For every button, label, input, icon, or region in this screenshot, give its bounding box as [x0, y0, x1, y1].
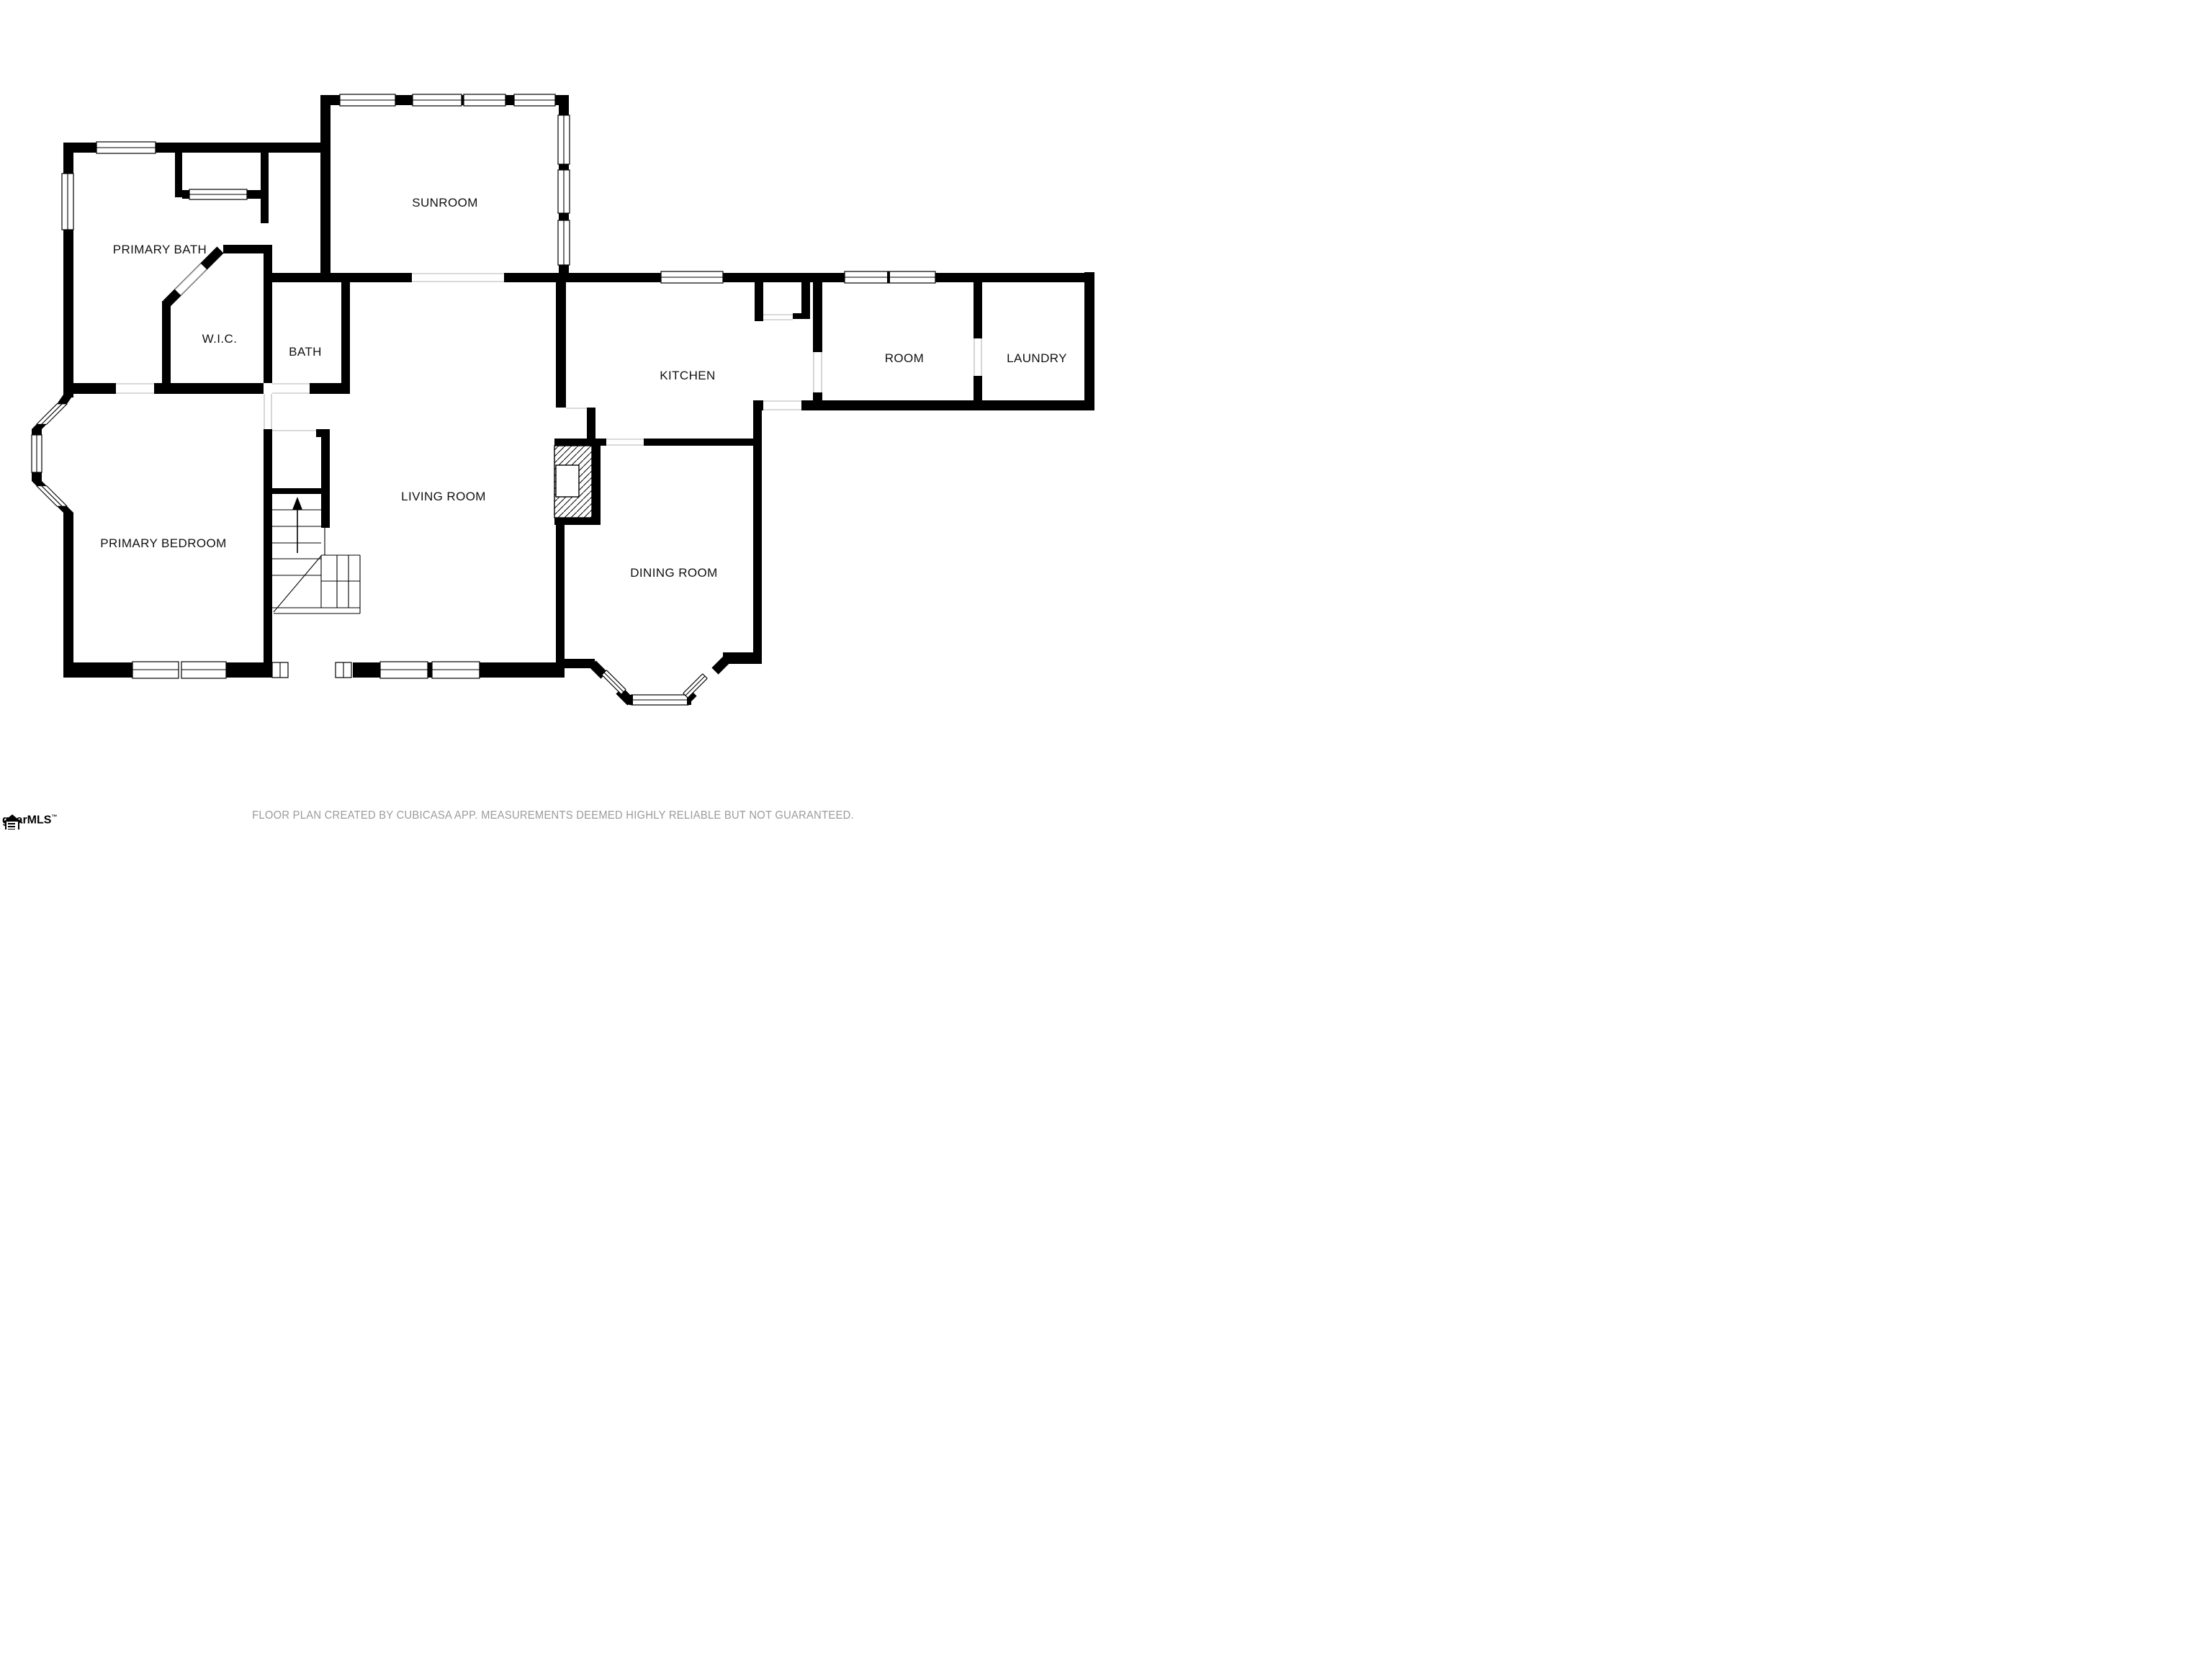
window-sunroom-right-2 [558, 170, 570, 213]
window-bay-bedroom-lower [37, 486, 68, 507]
door-living-bottom-jambs [272, 662, 351, 678]
mls-logo: ggarMLS™ [2, 814, 57, 827]
window-primary-bath-left [62, 174, 73, 230]
room-label-laundry: LAUNDRY [1007, 351, 1067, 365]
fireplace-group [554, 446, 592, 518]
window-sunroom-top-1 [340, 94, 395, 106]
room-label-wic: W.I.C. [202, 332, 238, 346]
door-openings-group [116, 264, 981, 445]
window-living-bottom-1 [380, 662, 428, 678]
room-label-kitchen: KITCHEN [660, 369, 715, 382]
window-sunroom-right-1 [558, 115, 570, 164]
room-label-room: ROOM [885, 351, 924, 365]
window-sunroom-top-4 [514, 94, 555, 106]
room-label-living-room: LIVING ROOM [401, 490, 486, 503]
window-sunroom-top-3 [464, 94, 505, 106]
window-living-bottom-2 [432, 662, 480, 678]
window-bedroom-bottom [132, 662, 226, 678]
window-bay-bedroom-upper [37, 404, 68, 425]
stairs-up-arrow-icon [292, 497, 302, 553]
window-sunroom-right-3 [558, 220, 570, 265]
window-primary-bath-top [96, 142, 156, 153]
window-bay-dining-bottom [629, 695, 691, 705]
room-label-bath: BATH [289, 345, 322, 359]
room-label-dining-room: DINING ROOM [630, 566, 718, 580]
disclaimer-text: FLOOR PLAN CREATED BY CUBICASA APP. MEAS… [27, 809, 1078, 822]
room-label-primary-bath: PRIMARY BATH [113, 243, 207, 256]
trademark-symbol: ™ [51, 814, 57, 820]
window-closet-niche [189, 189, 247, 199]
floorplan-drawing: SUNROOM PRIMARY BATH W.I.C. BATH KITCHEN… [0, 0, 1106, 829]
room-label-primary-bedroom: PRIMARY BEDROOM [100, 536, 226, 550]
window-bay-bedroom-middle [32, 435, 42, 472]
window-kitchen-top [661, 271, 723, 283]
windows-group [32, 94, 935, 705]
house-logo-icon [2, 814, 22, 829]
window-room-top [845, 271, 935, 283]
room-label-sunroom: SUNROOM [412, 196, 478, 210]
window-bay-dining-right [683, 674, 707, 698]
window-sunroom-top-2 [413, 94, 462, 106]
staircase-group [272, 497, 360, 613]
window-bay-dining-left [602, 670, 626, 695]
floorplan-page: SUNROOM PRIMARY BATH W.I.C. BATH KITCHEN… [0, 0, 1106, 829]
